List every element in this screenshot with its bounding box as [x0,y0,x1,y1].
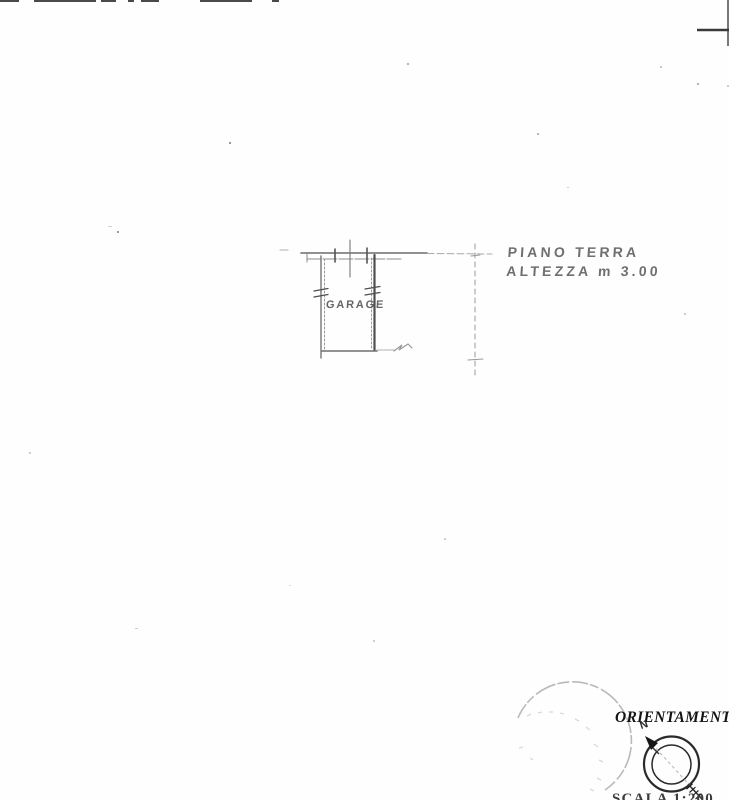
orientation-title: ORIENTAMENTO [615,709,729,727]
floor-annotation: PIANO TERRA ALTEZZA m 3.00 [506,243,663,281]
boundary-tick-top [471,255,480,256]
garage-floor-plan [280,240,492,378]
plan-drawing-layer [0,0,729,800]
north-arrow-head [645,736,658,750]
top-wall-extension [427,254,492,255]
scan-specks [29,63,729,642]
right-wall-hatch [365,287,380,296]
scale-note-cutoff: SCALA 1:200 [612,791,714,800]
scan-edge-artifacts [0,0,729,46]
garage-room-label: GARAGE [326,299,386,311]
partial-stamp-arc [518,682,631,791]
orientation-compass-icon [644,736,702,799]
break-mark-zigzag [394,344,412,351]
floor-annotation-line1: PIANO TERRA [507,243,663,262]
boundary-tick-bottom [468,359,483,360]
compass-inner-circle [652,745,691,784]
scanned-floor-plan-page: GARAGE PIANO TERRA ALTEZZA m 3.00 ORIENT… [0,0,729,800]
floor-annotation-line2: ALTEZZA m 3.00 [506,262,662,281]
